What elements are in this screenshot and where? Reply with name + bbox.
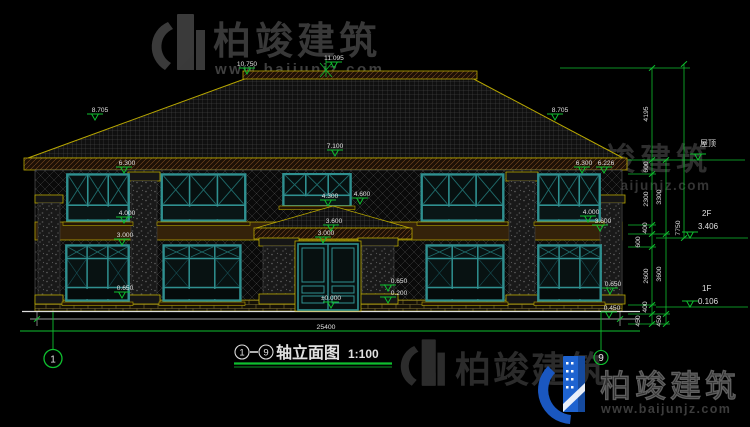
level-label-2f: 2F — [702, 209, 711, 218]
dim-label-total-height: 7750 — [675, 220, 682, 235]
window — [164, 245, 241, 300]
elevation-marker: ±0.000 — [321, 295, 341, 302]
dim-label: 450 — [635, 315, 642, 327]
dim-label: 600 — [635, 236, 642, 248]
watermark-top-center: 柏竣建筑 www.baijunjz.com — [152, 14, 385, 78]
axis-bubble-left: 1 — [50, 355, 56, 366]
drawing-scale: 1:100 — [348, 347, 379, 361]
level-label-roof: 屋顶 — [700, 139, 716, 148]
level-label-1f: 1F — [702, 284, 711, 293]
elevation-marker: 6.300 — [119, 160, 136, 167]
dim-label: 3600 — [656, 266, 663, 281]
dim-label: 450 — [656, 315, 663, 327]
window — [283, 174, 350, 206]
elevation-marker: 8.705 — [552, 107, 569, 114]
dim-label: 2300 — [643, 191, 650, 206]
dim-label: 400 — [642, 222, 649, 234]
elevation-marker: 11.095 — [324, 55, 344, 62]
elevation-marker: 3.600 — [595, 218, 612, 225]
level-value-1f: 0.106 — [698, 297, 719, 306]
pilaster-mid-right — [506, 172, 538, 304]
cad-elevation-screenshot: 柏竣建筑 www.baijunjz.com 柏竣建筑 www.baijunjz.… — [0, 0, 750, 427]
level-value-2f: 3.406 — [698, 222, 719, 231]
watermark-brand: 柏竣建筑 — [213, 21, 381, 63]
dim-label: 4195 — [643, 106, 650, 121]
dim-label: 2600 — [643, 268, 650, 283]
window — [422, 174, 504, 220]
elevation-marker: 3.600 — [326, 218, 343, 225]
window — [162, 174, 246, 220]
pilaster-left-corner — [35, 195, 63, 304]
title-axis-to: 9 — [263, 348, 268, 359]
elevation-marker: 4.000 — [583, 209, 600, 216]
elevation-marker: 3.000 — [117, 232, 134, 239]
dim-label: 600 — [643, 161, 650, 173]
elevation-marker: 0.650 — [391, 278, 408, 285]
porch-column-left — [259, 238, 299, 304]
elevation-marker: 0.650 — [605, 281, 622, 288]
elevation-marker: 4.000 — [119, 210, 136, 217]
elevation-marker: 8.705 — [92, 107, 109, 114]
watermark-brand: 柏竣建筑 — [600, 369, 740, 404]
eave-fascia — [24, 158, 627, 170]
drawing-title: 轴立面图 — [276, 343, 340, 362]
elevation-marker: 6.300 — [576, 160, 593, 167]
elevation-marker: 3.000 — [318, 230, 335, 237]
window — [427, 245, 504, 300]
window — [538, 245, 600, 300]
elevation-marker: 4.300 — [322, 193, 339, 200]
elevation-drawing-canvas: 柏竣建筑 www.baijunjz.com 柏竣建筑 www.baijunjz.… — [0, 0, 750, 427]
dim-label: 400 — [642, 301, 649, 313]
elevation-marker: 0.650 — [117, 285, 134, 292]
dim-total-width: 25400 — [317, 324, 336, 331]
axis-bubble-right: 9 — [598, 353, 604, 364]
ridge-cap — [243, 71, 477, 79]
elevation-marker: 0.200 — [391, 290, 408, 297]
elevation-marker: 6.226 — [598, 160, 615, 167]
dim-label: 3300 — [656, 189, 663, 204]
elevation-marker: 7.100 — [327, 143, 344, 150]
elevation-marker: 0.450 — [604, 305, 621, 312]
elevation-marker: 10.750 — [237, 61, 258, 68]
watermark-url: www.baijunjz.com — [600, 402, 731, 416]
title-axis-from: 1 — [239, 348, 244, 359]
logo-building-icon — [563, 356, 585, 412]
elevation-marker: 4.600 — [354, 191, 371, 198]
